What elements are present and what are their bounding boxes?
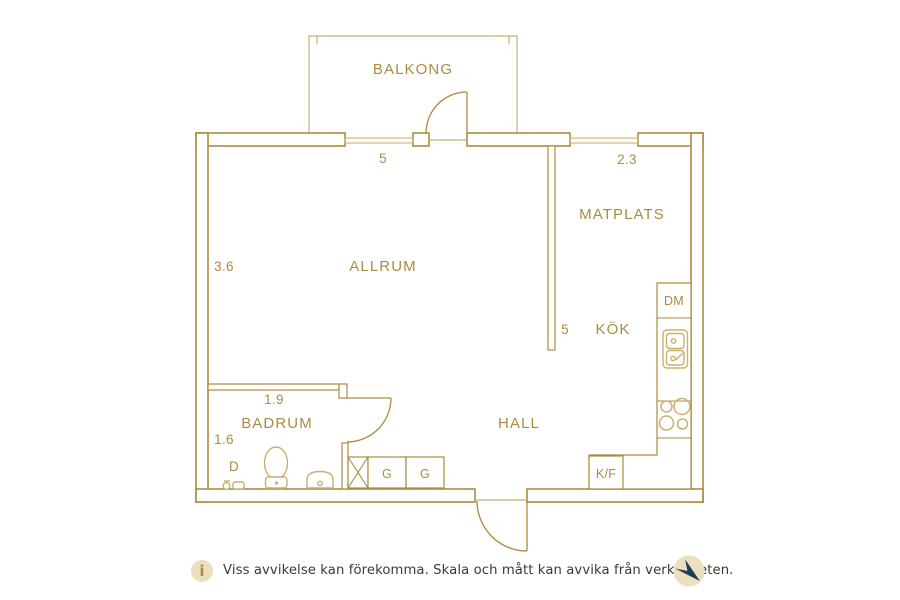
info-icon: i <box>191 560 213 582</box>
wall-top-left <box>196 133 345 146</box>
bathroom-fixtures <box>223 447 333 489</box>
balcony: BALKONG <box>309 36 517 133</box>
partition-allrum-kok <box>548 146 555 350</box>
disclaimer-text: Viss avvikelse kan förekomma. Skala och … <box>223 563 733 578</box>
fridge-freezer-label: K/F <box>596 467 616 481</box>
outer-walls <box>196 133 703 502</box>
dishwasher-label: DM <box>664 294 684 308</box>
wall-top-cap <box>413 133 429 146</box>
wardrobe-2: G <box>406 457 444 488</box>
measurement-matplats-width: 2.3 <box>617 152 637 167</box>
entry-door <box>477 501 527 551</box>
window-allrum <box>345 138 413 143</box>
bathroom-door-post <box>339 384 347 398</box>
sink-icon <box>663 330 688 368</box>
bathroom-door <box>347 398 391 442</box>
compass-icon <box>673 555 705 587</box>
measurement-kok-height: 5 <box>561 322 569 337</box>
kitchen: DM K/F <box>589 283 691 489</box>
room-label-badrum: BADRUM <box>241 415 313 432</box>
shower-drain-icon <box>223 481 244 489</box>
wall-bottom-right <box>527 489 703 502</box>
fridge-freezer: K/F <box>589 456 623 489</box>
windows <box>345 138 638 500</box>
balcony-label: BALKONG <box>373 61 453 78</box>
room-label-matplats: MATPLATS <box>579 206 665 223</box>
wardrobe-1-label: G <box>382 467 392 481</box>
floorplan-page: BALKONG <box>0 0 900 600</box>
bathroom-wall-east <box>342 443 348 489</box>
floor-plan: BALKONG <box>0 0 900 600</box>
footer: i Viss avvikelse kan förekomma. Skala oc… <box>0 552 900 592</box>
shower-label: D <box>229 459 239 474</box>
measurement-allrum-height: 3.6 <box>214 259 234 274</box>
room-label-allrum: ALLRUM <box>349 258 416 275</box>
wardrobe-1: G <box>368 457 406 488</box>
measurement-badrum-height: 1.6 <box>214 432 234 447</box>
toilet-icon <box>265 447 288 488</box>
balcony-door <box>426 92 467 133</box>
shaft-box <box>348 457 368 488</box>
balcony-outline <box>309 36 517 133</box>
room-label-kok: KÖK <box>596 320 631 338</box>
measurement-window-top: 5 <box>379 151 387 166</box>
room-label-hall: HALL <box>498 415 540 432</box>
washbasin-icon <box>307 472 333 489</box>
labels: 5 2.3 MATPLATS ALLRUM 3.6 5 KÖK 1.9 BADR… <box>214 151 665 474</box>
window-matplats <box>570 138 638 143</box>
closets: G G <box>348 457 444 488</box>
measurement-badrum-width: 1.9 <box>264 392 284 407</box>
bathroom-wall-top <box>208 384 339 390</box>
wall-right <box>691 133 703 502</box>
wardrobe-2-label: G <box>420 467 430 481</box>
wall-bottom-left <box>196 489 475 502</box>
wall-top-mid <box>467 133 570 146</box>
wall-left <box>196 133 208 502</box>
partitions <box>208 146 555 489</box>
